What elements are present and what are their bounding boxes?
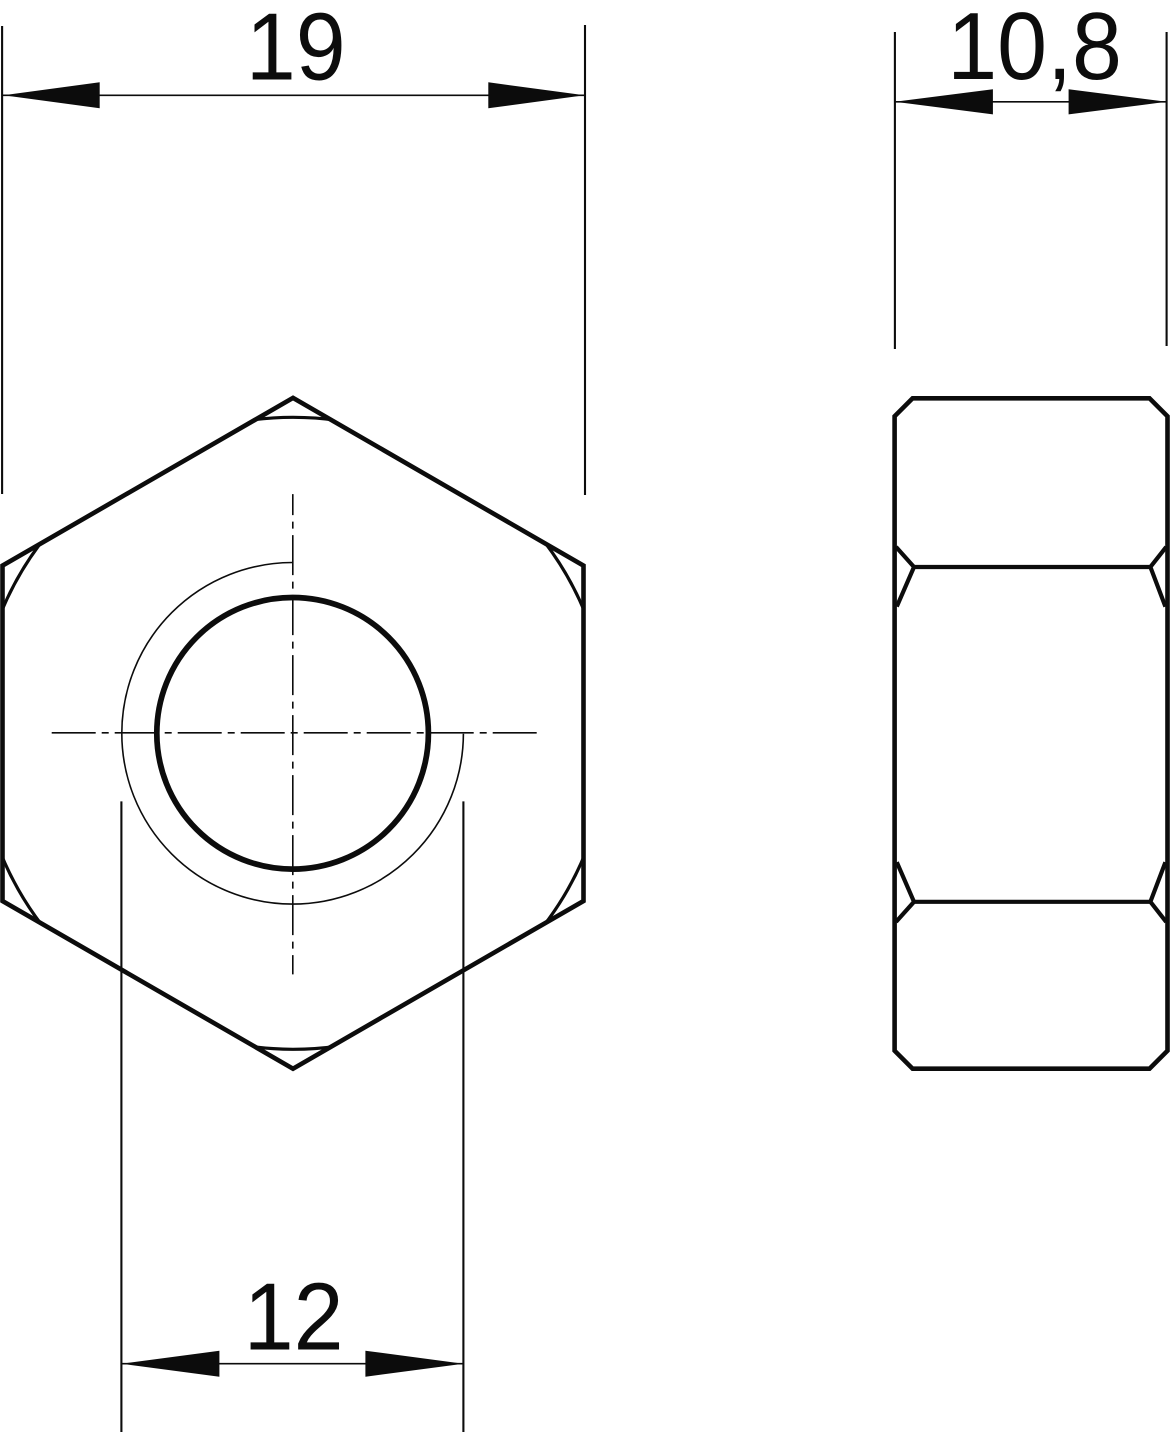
- svg-text:19: 19: [246, 0, 346, 100]
- svg-text:10,8: 10,8: [947, 0, 1122, 100]
- svg-text:12: 12: [244, 1263, 344, 1370]
